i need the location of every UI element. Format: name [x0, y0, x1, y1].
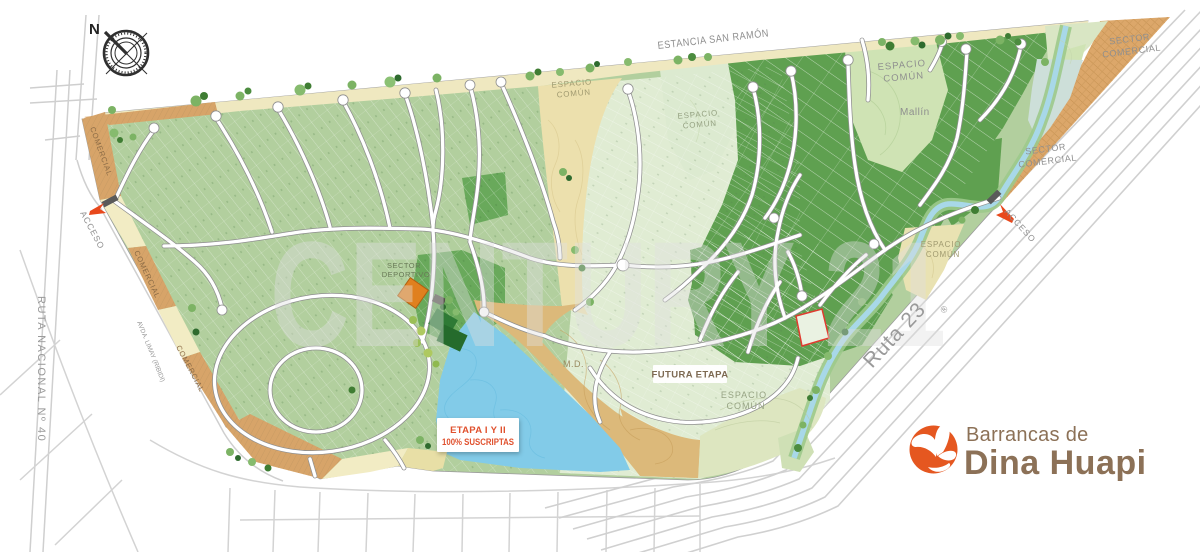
- svg-text:COMÚN: COMÚN: [727, 401, 766, 411]
- svg-text:SECTOR: SECTOR: [387, 261, 421, 270]
- svg-text:ESPACIO: ESPACIO: [921, 240, 962, 249]
- svg-text:ESPACIO: ESPACIO: [721, 390, 767, 400]
- svg-text:ETAPA I Y II: ETAPA I Y II: [450, 425, 506, 436]
- svg-text:100% SUSCRIPTAS: 100% SUSCRIPTAS: [442, 437, 514, 447]
- svg-text:DEPORTIVO: DEPORTIVO: [382, 270, 431, 279]
- svg-text:Mallín: Mallín: [900, 107, 930, 118]
- svg-text:CENTURY 21: CENTURY 21: [270, 210, 946, 378]
- svg-text:COMÚN: COMÚN: [926, 250, 960, 259]
- svg-text:N: N: [89, 21, 100, 38]
- svg-text:Dina Huapi: Dina Huapi: [964, 444, 1147, 482]
- svg-text:RUTA NACIONAL Nº 40: RUTA NACIONAL Nº 40: [35, 296, 47, 442]
- svg-text:FUTURA ETAPA: FUTURA ETAPA: [652, 370, 729, 381]
- svg-text:Barrancas de: Barrancas de: [966, 424, 1089, 446]
- svg-text:M.D.: M.D.: [563, 359, 584, 369]
